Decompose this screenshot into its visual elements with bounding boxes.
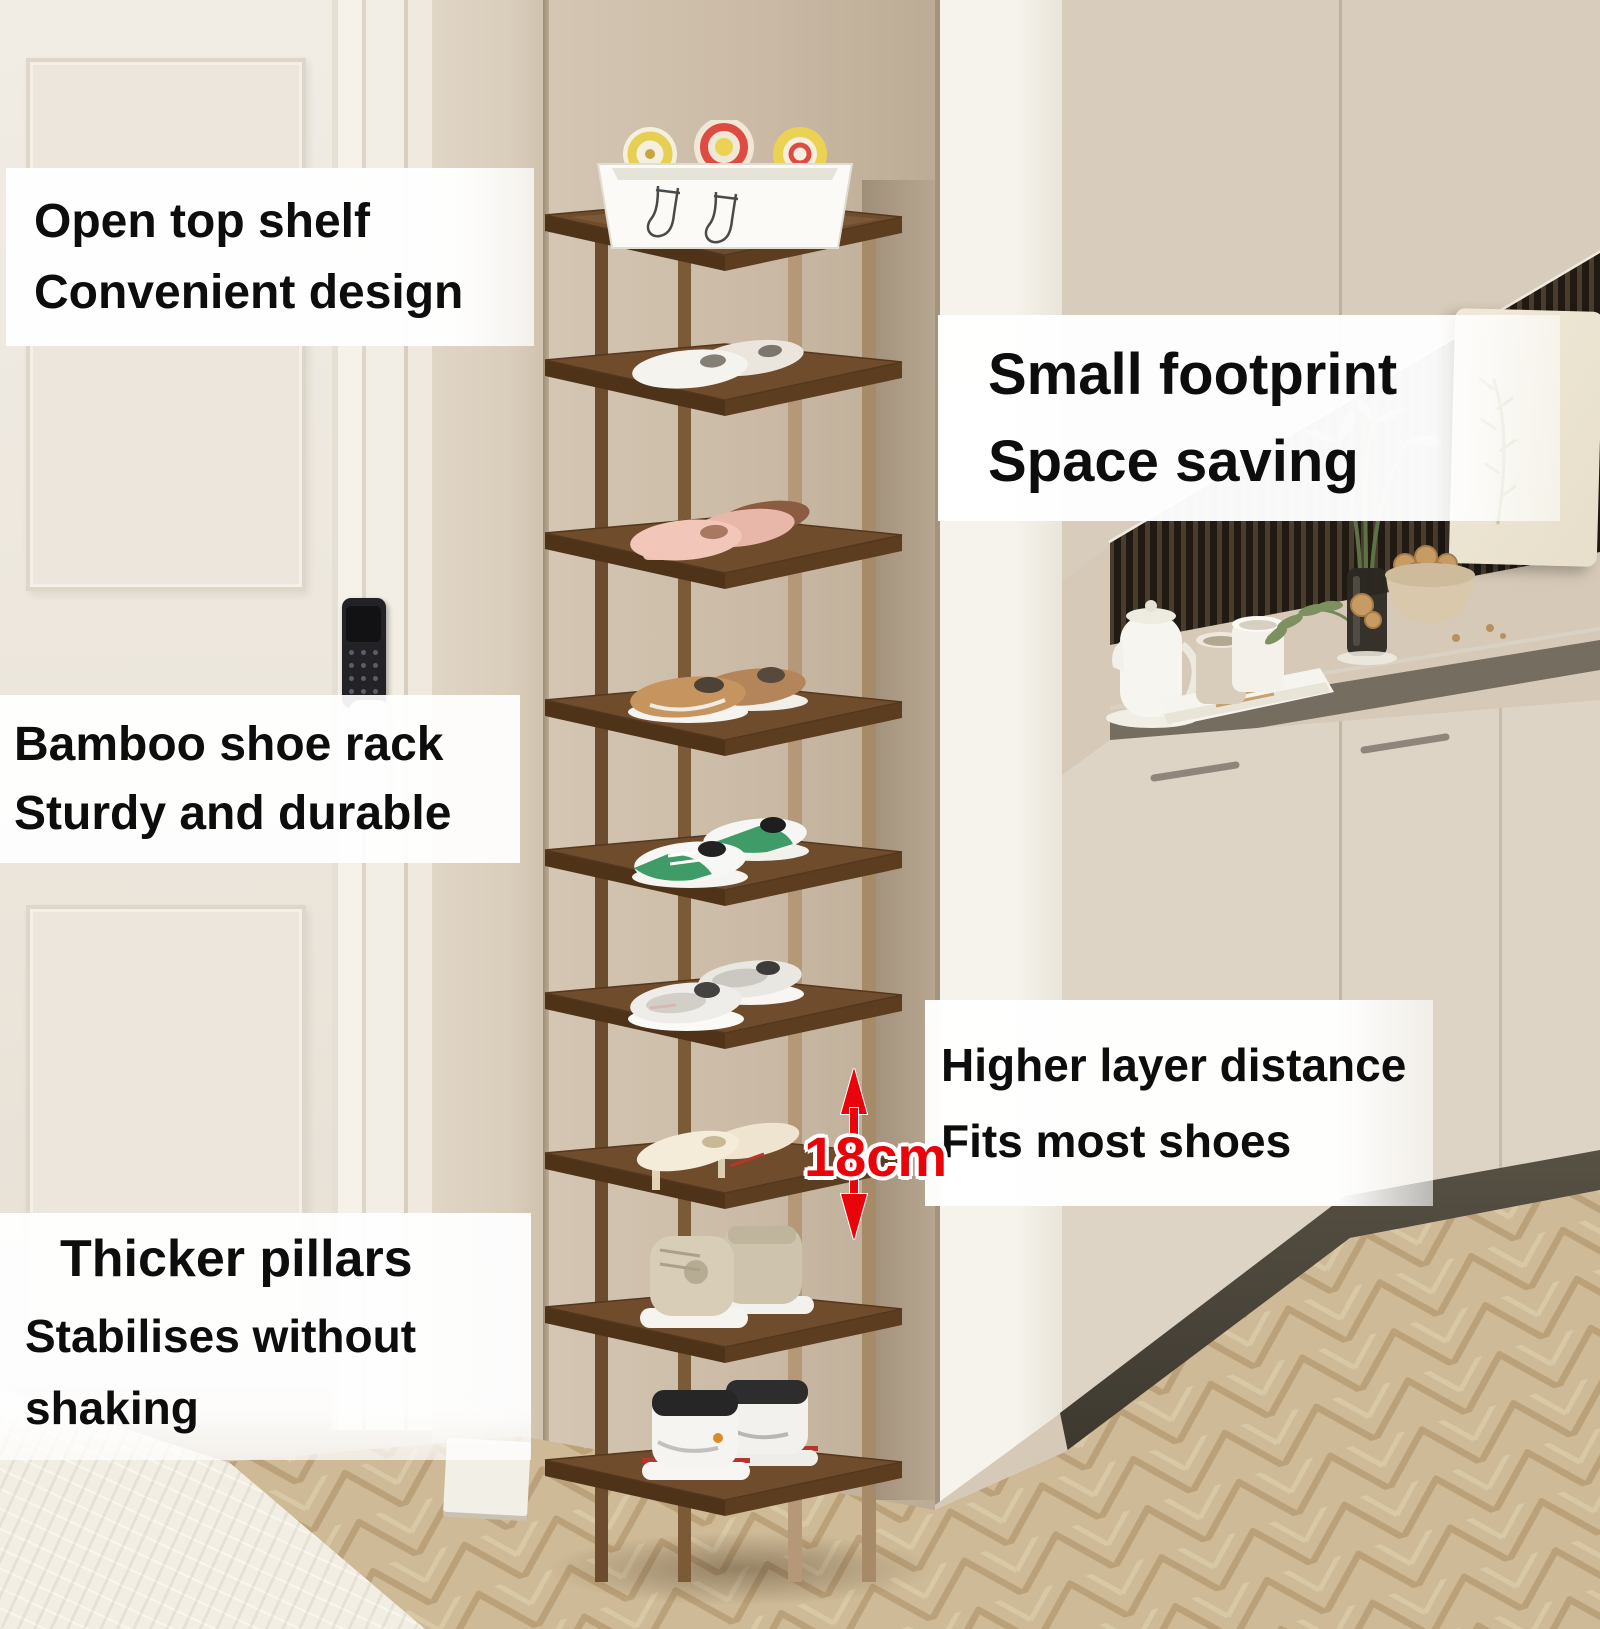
measurement-label: 18cm (804, 1124, 947, 1189)
storage-basket (598, 120, 852, 248)
callout-line: Higher layer distance (941, 1038, 1433, 1092)
smart-lock (342, 598, 386, 708)
callout-line: Fits most shoes (941, 1114, 1433, 1168)
callout-small-footprint: Small footprint Space saving (938, 315, 1560, 521)
callout-line: Convenient design (34, 265, 534, 320)
callout-line: Sturdy and durable (14, 786, 520, 841)
callout-thicker-pillars: Thicker pillars Stabilises without shaki… (0, 1213, 531, 1460)
product-photo-shoe-rack: Open top shelf Convenient design Small f… (0, 0, 1600, 1629)
lock-keypad (349, 650, 379, 698)
callout-line: Open top shelf (34, 194, 534, 249)
lock-sensor (346, 606, 381, 642)
callout-bamboo-shoe-rack: Bamboo shoe rack Sturdy and durable (0, 695, 520, 863)
bamboo-shoe-rack (500, 120, 940, 1600)
beige-high-top-boots (640, 1226, 814, 1328)
callout-higher-layer-distance: Higher layer distance Fits most shoes (925, 1000, 1433, 1206)
cabinet-handle (1150, 761, 1240, 782)
callout-line: Bamboo shoe rack (14, 717, 520, 772)
callout-line: Space saving (988, 428, 1560, 495)
cups (1196, 616, 1284, 704)
callout-line: Small footprint (988, 341, 1560, 408)
white-high-top-sneakers (642, 1380, 818, 1480)
callout-line: Thicker pillars (25, 1229, 531, 1289)
callout-open-top-shelf: Open top shelf Convenient design (6, 168, 534, 346)
callout-line: Stabilises without shaking (25, 1301, 475, 1444)
